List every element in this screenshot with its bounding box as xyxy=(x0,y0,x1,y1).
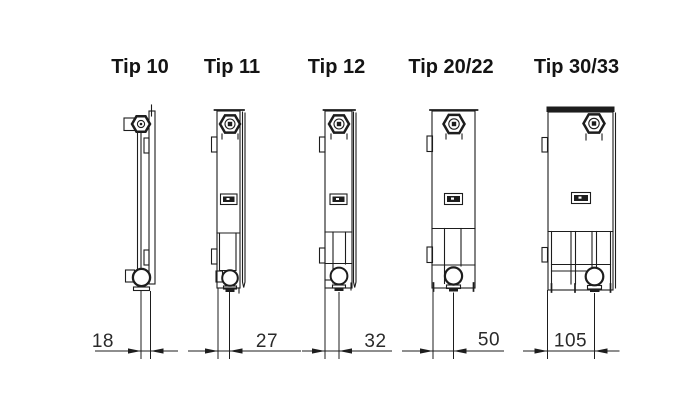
bottom-connection-icon xyxy=(133,269,150,286)
figure-tip-20-22: Tip 20/22 xyxy=(402,56,504,359)
wall-clip xyxy=(212,249,218,264)
brand-badge xyxy=(572,193,591,204)
dimension-arrow xyxy=(339,348,352,353)
bottom-fitting xyxy=(333,285,346,291)
bottom-fitting xyxy=(134,287,150,291)
radiator-drawing-tip-11 xyxy=(212,110,246,293)
lower-section xyxy=(548,232,613,293)
dimension-value-tip-30-33: 105 xyxy=(554,331,587,352)
dimension-arrow xyxy=(312,348,325,353)
type-label-tip-30-33: Tip 30/33 xyxy=(534,56,619,78)
rear-fin xyxy=(243,112,246,288)
type-label-tip-11: Tip 11 xyxy=(204,56,260,78)
rear-fin xyxy=(354,112,357,288)
dimension-annotation-tip-30-33: 105 xyxy=(523,290,620,359)
valve-icon xyxy=(444,115,465,139)
wall-clip xyxy=(542,248,548,263)
type-label-tip-20-22: Tip 20/22 xyxy=(408,56,493,78)
radiator-drawing-tip-30-33 xyxy=(542,107,616,293)
type-label-tip-10: Tip 10 xyxy=(111,56,168,78)
brand-badge xyxy=(445,194,463,205)
dimension-arrow xyxy=(151,348,164,353)
bottom-connection-icon xyxy=(445,267,462,284)
dimension-arrow xyxy=(128,348,141,353)
dimension-arrow xyxy=(535,348,548,353)
brand-badge xyxy=(221,194,238,205)
bottom-connection-icon xyxy=(331,268,348,285)
dimension-value-tip-11: 27 xyxy=(256,331,278,352)
bottom-fitting xyxy=(224,286,237,292)
figure-tip-11: Tip 11 xyxy=(188,56,301,359)
dimension-arrow xyxy=(420,348,433,353)
top-cap xyxy=(547,107,615,113)
dimension-value-tip-10: 18 xyxy=(92,331,114,352)
dimension-annotation-tip-10: 18 xyxy=(92,291,178,359)
bottom-connection-icon xyxy=(586,268,604,286)
panel-front-face xyxy=(138,118,142,286)
figure-tip-30-33: Tip 30/33 xyxy=(523,56,620,359)
diagram-svg: Tip 10 18 Tip 11 xyxy=(0,0,700,407)
wall-clip xyxy=(212,137,218,152)
wall-clip xyxy=(542,138,548,153)
dimension-annotation-tip-11: 27 xyxy=(188,288,301,359)
bottom-fitting xyxy=(588,286,602,293)
valve-icon xyxy=(329,115,349,139)
radiator-drawing-tip-12 xyxy=(320,110,357,291)
radiator-drawing-tip-20-22 xyxy=(427,110,478,292)
bottom-connection-icon xyxy=(222,270,238,286)
dimension-arrow xyxy=(230,348,243,353)
wall-clip xyxy=(320,137,326,152)
dimension-arrow xyxy=(454,348,467,353)
figure-tip-10: Tip 10 18 xyxy=(92,56,178,359)
valve-icon xyxy=(220,115,240,139)
wall-clip xyxy=(144,138,149,153)
radiator-types-diagram: Tip 10 18 Tip 11 xyxy=(0,0,700,407)
radiator-drawing-tip-10 xyxy=(124,105,155,291)
type-label-tip-12: Tip 12 xyxy=(308,56,365,78)
valve-icon xyxy=(584,114,605,140)
dimension-arrow xyxy=(205,348,218,353)
dimension-value-tip-20-22: 50 xyxy=(478,330,500,351)
panel-rear-face xyxy=(149,111,155,284)
wall-clip xyxy=(144,250,149,265)
wall-clip xyxy=(320,248,326,263)
dimension-annotation-tip-20-22: 50 xyxy=(402,288,504,359)
dimension-annotation-tip-12: 32 xyxy=(302,288,392,359)
brand-badge xyxy=(330,194,347,205)
figure-tip-12: Tip 12 xyxy=(302,56,392,359)
dimension-arrow xyxy=(595,348,608,353)
dimension-value-tip-12: 32 xyxy=(364,331,386,352)
valve-icon xyxy=(132,116,150,132)
bottom-fitting xyxy=(447,285,461,292)
